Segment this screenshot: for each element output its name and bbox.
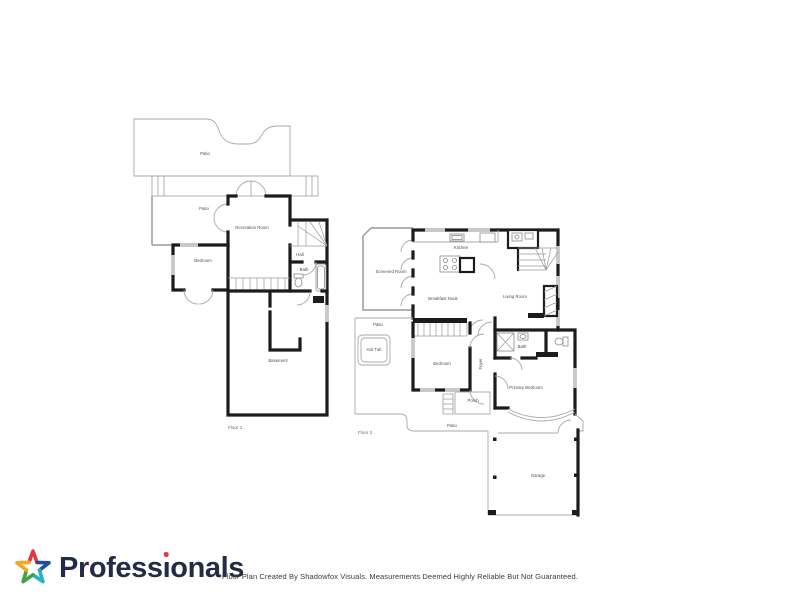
room-hall: Hall	[290, 222, 327, 257]
professionals-logo: Professıonals	[14, 549, 244, 587]
room-bedroom-f2: Bedroom	[413, 323, 470, 390]
room-label-foyer: Foyer	[478, 358, 483, 370]
room-label-patio-lower: Patio	[447, 423, 457, 428]
brand-i-dot	[164, 552, 169, 557]
room-label-patio-small-f1: Patio	[199, 206, 209, 211]
floorplan-floor1: Patio Patio Recreation Room Hall	[120, 110, 340, 440]
room-living: Living Room	[480, 264, 557, 318]
room-patio-small-f1: Patio	[152, 196, 228, 245]
room-label-recreation: Recreation Room	[235, 225, 269, 230]
room-label-hot-tub: Hot Tub	[366, 347, 382, 352]
room-bedroom-f1: Bedroom	[173, 245, 228, 304]
room-label-basement: Basement	[268, 358, 288, 363]
floor2-caption: Floor 2	[358, 430, 373, 435]
room-porch: Porch	[443, 392, 490, 414]
room-label-patio-upper-f2: Patio	[373, 322, 383, 327]
room-label-living: Living Room	[503, 294, 527, 299]
room-bath-f2: Bath	[495, 330, 575, 414]
room-foyer: Foyer	[470, 318, 495, 408]
room-label-porch: Porch	[467, 398, 479, 403]
room-label-bath-f1: Bath	[300, 267, 309, 272]
room-label-patio-upper-f1: Patio	[200, 151, 210, 156]
stairs-f2	[508, 230, 558, 270]
room-basement: Basement	[228, 290, 327, 415]
room-label-bedroom-f1: Bedroom	[194, 258, 212, 263]
floorplan-page: Patio Patio Recreation Room Hall	[0, 0, 800, 600]
floor1-caption: Floor 1	[228, 425, 243, 430]
room-label-breakfast: Breakfast Nook	[428, 296, 458, 301]
room-bath-f1: Bath	[294, 262, 326, 291]
room-screened: Screened Room	[363, 228, 413, 310]
disclaimer-text: Floor Plan Created By Shadowfox Visuals.…	[0, 572, 800, 581]
room-label-screened: Screened Room	[375, 269, 406, 274]
room-label-kitchen: Kitchen	[454, 245, 469, 250]
room-breakfast: Breakfast Nook	[413, 296, 483, 336]
brand-wordmark: Professıonals	[59, 549, 244, 587]
room-primary: Primary Bedroom	[495, 376, 575, 421]
floorplan-floor2: Screened Room Kitchen	[350, 218, 595, 528]
room-kitchen: Kitchen	[413, 230, 498, 272]
room-recreation: Recreation Room	[228, 196, 327, 292]
room-label-bath-f2: Bath	[518, 344, 527, 349]
room-label-hall: Hall	[296, 252, 303, 257]
room-label-primary: Primary Bedroom	[509, 385, 543, 390]
room-garage: Garage	[488, 414, 583, 515]
room-label-bedroom-f2: Bedroom	[433, 361, 451, 366]
room-label-garage: Garage	[531, 473, 546, 478]
star-icon	[14, 549, 52, 587]
room-patio-upper-f1: Patio	[134, 119, 290, 176]
deck-strip-f1	[152, 176, 318, 196]
